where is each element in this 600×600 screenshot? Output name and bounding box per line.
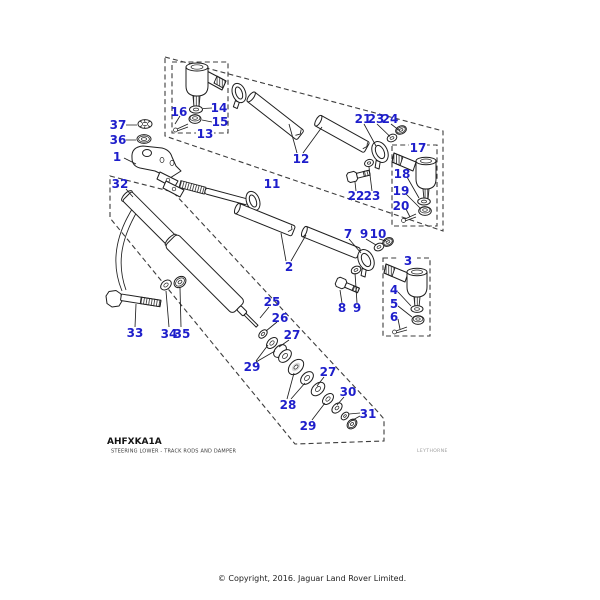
callout-13[interactable]: 13 — [197, 127, 214, 141]
drop-arm-1-part — [172, 187, 176, 191]
callout-17[interactable]: 17 — [410, 141, 427, 155]
clamp-upper-left — [226, 81, 250, 109]
drawing-code: AHFXKA1A — [107, 437, 162, 447]
callout-23[interactable]: 23 — [364, 189, 381, 203]
washer-30 — [330, 401, 344, 415]
washer-18 — [418, 198, 431, 205]
callout-10[interactable]: 10 — [370, 227, 387, 241]
nut-19 — [419, 207, 432, 216]
washer-14 — [190, 106, 203, 113]
cup-28-rear — [298, 369, 316, 387]
steering-damper-32-part — [116, 206, 134, 291]
bolt-22 — [346, 168, 371, 183]
bush-27-rear — [309, 380, 328, 399]
drop-arm-1 — [132, 146, 249, 205]
washer-29-rear — [320, 391, 335, 406]
washer-9-lower — [350, 265, 362, 276]
callout-33[interactable]: 33 — [127, 326, 144, 340]
rod-11-threaded — [179, 181, 248, 206]
callout-24[interactable]: 24 — [382, 112, 399, 126]
drawing-title: STEERING LOWER - TRACK RODS AND DAMPER — [111, 449, 237, 455]
washer-4 — [411, 306, 423, 313]
callout-3[interactable]: 3 — [404, 254, 412, 268]
callout-30[interactable]: 30 — [340, 385, 357, 399]
cotter-pin-20-part — [402, 219, 406, 223]
callout-29[interactable]: 29 — [244, 360, 261, 374]
callout-15[interactable]: 15 — [212, 115, 229, 129]
callout-2[interactable]: 2 — [285, 260, 293, 274]
callout-36[interactable]: 36 — [110, 133, 127, 147]
rod-2-front — [233, 203, 295, 237]
callout-6[interactable]: 6 — [390, 310, 398, 324]
cotter-pin-6-part — [393, 330, 397, 334]
parts-diagram-page: 1234567899101112131415161718192021222323… — [0, 0, 600, 600]
nut-5 — [412, 316, 424, 325]
washer-18-part — [422, 200, 427, 203]
callout-22[interactable]: 22 — [348, 189, 365, 203]
callout-29[interactable]: 29 — [300, 419, 317, 433]
track-rod-upper — [226, 81, 407, 183]
bolt-22-part — [346, 171, 358, 183]
callout-9[interactable]: 9 — [353, 301, 361, 315]
cotter-pin-6-part — [396, 327, 407, 333]
tie-rod-end-kit-17-part — [423, 189, 429, 199]
callout-27[interactable]: 27 — [284, 328, 301, 342]
bolt-33 — [106, 291, 161, 308]
rod-11-threaded-part — [204, 188, 248, 205]
callout-7[interactable]: 7 — [344, 227, 352, 241]
callout-8[interactable]: 8 — [338, 301, 346, 315]
nut-35 — [172, 274, 188, 290]
copyright-line: © Copyright, 2016. Jaguar Land Rover Lim… — [218, 574, 406, 583]
washer-14-part — [193, 108, 198, 111]
callout-25[interactable]: 25 — [264, 295, 281, 309]
nut-19-part — [423, 209, 428, 212]
callout-26[interactable]: 26 — [272, 311, 289, 325]
tie-rod-end-kit-17-part — [421, 159, 432, 163]
rod-12-front — [246, 91, 305, 140]
tie-rod-end-kit-13-part — [191, 65, 203, 69]
tie-rod-end-kit-3-part — [412, 270, 423, 274]
callout-20[interactable]: 20 — [393, 199, 410, 213]
cotter-pin-16-part — [174, 128, 178, 132]
callout-5[interactable]: 5 — [390, 297, 398, 311]
drop-arm-1-part — [143, 150, 152, 157]
drop-arm-fasteners — [137, 120, 152, 144]
callout-32[interactable]: 32 — [112, 177, 129, 191]
callout-35[interactable]: 35 — [174, 327, 191, 341]
washer-23-lower — [363, 158, 374, 168]
callout-28[interactable]: 28 — [280, 398, 297, 412]
callout-19[interactable]: 19 — [393, 184, 410, 198]
rod-12-front-part — [246, 91, 304, 140]
bolt-33-part-part — [140, 297, 161, 307]
callout-14[interactable]: 14 — [211, 101, 228, 115]
callout-12[interactable]: 12 — [293, 152, 310, 166]
washer-4-part — [415, 308, 420, 311]
steering-damper-32-part-part — [244, 313, 258, 327]
cotter-pin-16-part — [177, 124, 188, 131]
track-rod-lower — [233, 189, 394, 295]
callout-37[interactable]: 37 — [110, 118, 127, 132]
bolt-33-part — [106, 291, 122, 308]
watermark: LEYTHORNE — [417, 448, 448, 454]
callout-11[interactable]: 11 — [264, 177, 281, 191]
lock-washer-37-part — [142, 122, 148, 125]
nut-31 — [345, 417, 359, 431]
lock-washer-37 — [138, 120, 152, 129]
steering-damper-32-part-part — [122, 191, 175, 244]
steering-damper-32-part — [121, 210, 138, 290]
callout-16[interactable]: 16 — [171, 105, 188, 119]
callout-1[interactable]: 1 — [113, 150, 121, 164]
bolt-33-part — [120, 294, 161, 307]
nut-36-part — [141, 138, 146, 141]
tie-rod-end-kit-13-part — [193, 96, 200, 107]
steering-damper-32-part-part — [164, 233, 245, 314]
cotter-pin-16 — [174, 124, 189, 132]
nut-15-part — [193, 117, 198, 120]
callout-9[interactable]: 9 — [360, 227, 368, 241]
drop-arm-1-part — [170, 160, 174, 165]
nut-5-part — [416, 318, 420, 320]
drop-arm-1-part — [160, 157, 164, 162]
damper-bush-chain — [257, 328, 359, 431]
nut-36 — [137, 135, 151, 144]
callout-27[interactable]: 27 — [320, 365, 337, 379]
washer-31 — [340, 411, 351, 422]
rod-2-front-part — [234, 203, 296, 236]
diagram-canvas: 1234567899101112131415161718192021222323… — [0, 0, 600, 600]
callout-18[interactable]: 18 — [394, 167, 411, 181]
callout-31[interactable]: 31 — [360, 407, 377, 421]
nut-15 — [189, 115, 201, 124]
callout-4[interactable]: 4 — [390, 283, 398, 297]
